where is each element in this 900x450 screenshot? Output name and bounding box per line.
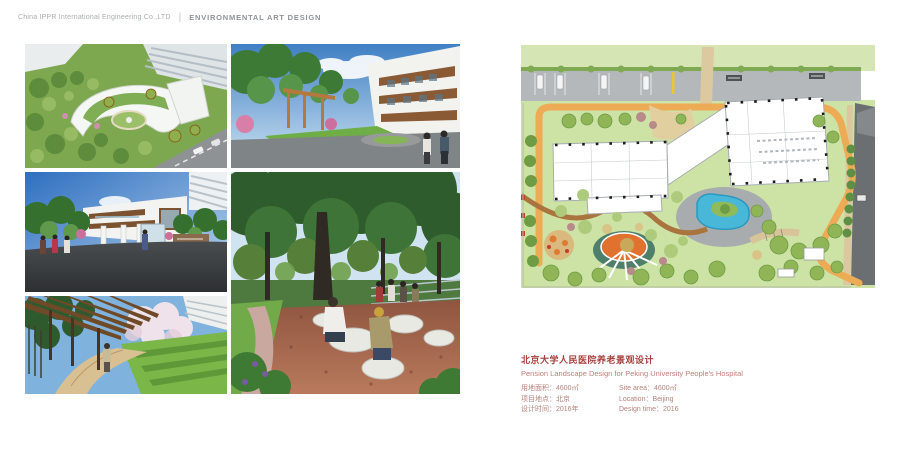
detail-en: Location：Beijing (619, 395, 851, 406)
detail-en: Design time：2016 (619, 405, 851, 416)
render-tree-plaza (231, 172, 460, 394)
detail-cn: 项目地点：北京 (521, 395, 619, 406)
detail-cn: 用地面积：4600㎡ (521, 384, 619, 395)
project-title-en: Pension Landscape Design for Peking Univ… (521, 369, 851, 378)
department-title: ENVIRONMENTAL ART DESIGN (189, 13, 321, 22)
project-title-cn: 北京大学人民医院养老景观设计 (521, 353, 851, 366)
rendering-gallery (25, 44, 460, 394)
render-main-entrance (25, 172, 227, 292)
master-plan (521, 45, 875, 290)
header-divider: | (179, 12, 182, 23)
detail-row-location: 项目地点：北京 Location：Beijing (521, 395, 851, 406)
portfolio-page: China IPPR International Engineering Co.… (0, 0, 900, 450)
detail-cn: 设计时间：2016年 (521, 405, 619, 416)
project-info: 北京大学人民医院养老景观设计 Pension Landscape Design … (521, 353, 851, 416)
detail-row-site-area: 用地面积：4600㎡ Site area：4600㎡ (521, 384, 851, 395)
page-header: China IPPR International Engineering Co.… (18, 12, 321, 23)
company-name: China IPPR International Engineering Co.… (18, 14, 171, 21)
render-aerial-view (25, 44, 227, 168)
render-courtyard-entry (231, 44, 460, 168)
detail-row-design-time: 设计时间：2016年 Design time：2016 (521, 405, 851, 416)
detail-en: Site area：4600㎡ (619, 384, 851, 395)
render-pergola-walkway (25, 296, 227, 394)
